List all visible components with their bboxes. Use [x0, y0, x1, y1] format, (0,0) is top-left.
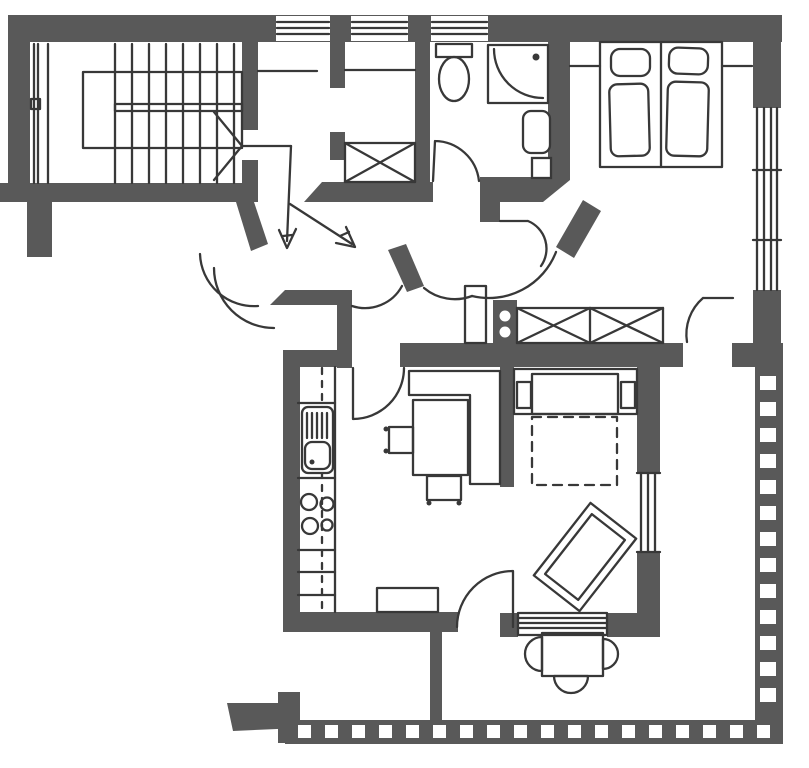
wall-living-right-upper	[637, 350, 660, 473]
hall-stub-chamfer	[388, 244, 424, 292]
dining-table	[413, 400, 468, 475]
chair-knob-2	[384, 449, 389, 454]
floor-plan-page	[0, 0, 809, 768]
duct-shaft	[465, 286, 486, 343]
wall-bathroom-stub	[480, 202, 500, 222]
dining-chair-left	[389, 427, 413, 453]
wall-bathroom-bottom	[480, 177, 570, 202]
balcony-railing-right	[755, 367, 783, 744]
hall-scallop-1	[200, 254, 258, 306]
bedroom-door-swing	[500, 221, 546, 266]
pillow-left	[611, 49, 650, 76]
wall-living-right-lower	[637, 552, 660, 637]
wall-entrance-stub	[236, 202, 268, 251]
duct-shaft-box	[465, 286, 486, 343]
stove-burner-3	[302, 518, 318, 534]
pillar-dot-2	[500, 327, 511, 338]
fold-out-bed-dashed	[532, 417, 617, 485]
wall-stair-left	[8, 15, 30, 202]
wall-corridor-bottom-right	[732, 343, 783, 367]
wall-bathroom-left	[415, 42, 430, 183]
walls	[0, 15, 783, 744]
bathroom-door-swing	[433, 141, 479, 181]
sink-drain-dot	[310, 460, 315, 465]
wall-niche-b	[330, 132, 345, 160]
washbasin-shelf	[532, 158, 551, 178]
stove-burner-1	[301, 494, 317, 510]
blanket-left	[609, 83, 650, 156]
stair-direction-chevron	[214, 112, 242, 180]
armchair-outer	[534, 503, 636, 611]
chair-knob-3	[427, 501, 432, 506]
dining-chair-bottom	[427, 476, 461, 500]
entry-arrow-diagonal	[290, 204, 352, 244]
wall-stub-left	[27, 202, 52, 257]
sofa-arm-right	[621, 382, 635, 408]
chair-knob-4	[457, 501, 462, 506]
pillow-right	[669, 47, 709, 74]
wall-duct-pillar	[493, 300, 517, 345]
floor-plan-drawing	[0, 0, 809, 768]
hall-scallop-3	[352, 286, 402, 308]
corner-bench	[409, 371, 500, 484]
sofa-bed-seat	[532, 374, 618, 414]
washbasin	[523, 111, 550, 153]
toilet-tank	[436, 44, 472, 57]
kitchen-door-swing	[353, 368, 404, 419]
sofa-arm-left	[517, 382, 531, 408]
window-right-bedroom	[753, 108, 781, 290]
wall-hall-pier	[556, 200, 601, 258]
armchair	[534, 503, 636, 611]
bedroom-living-door-swing	[686, 298, 733, 342]
stair-handrail	[115, 104, 242, 111]
armchair-inner	[545, 514, 625, 600]
wall-under-vestibule	[304, 182, 433, 202]
entry-arrow-down	[287, 146, 291, 241]
balcony-chair-bottom	[554, 676, 588, 693]
wardrobe-run-cross	[517, 308, 663, 343]
wall-kitchen-bottom	[283, 612, 458, 632]
balcony-chair-right	[603, 639, 618, 669]
wall-hall-bar	[270, 290, 352, 305]
balcony-chair-left	[525, 637, 542, 671]
chair-knob-1	[384, 427, 389, 432]
blanket-right	[666, 81, 709, 156]
balcony-table	[542, 633, 603, 676]
wall-dining-divider	[500, 367, 514, 487]
toilet-bowl	[439, 57, 469, 101]
wall-niche-a	[330, 42, 345, 88]
hall-scallop-2	[214, 268, 274, 328]
kitchen-base-cabinet	[377, 588, 438, 612]
wall-bathroom-right	[548, 42, 570, 177]
wall-vestibule-left-b	[242, 160, 258, 202]
shower-tray	[488, 45, 548, 103]
pillar-dot-1	[500, 311, 511, 322]
closet-xbox-niche-cross	[345, 143, 415, 182]
shower-drain-dot	[533, 54, 540, 61]
washbasin-group	[523, 111, 551, 178]
wall-vestibule-left-a	[242, 42, 258, 130]
window-living-right	[637, 473, 660, 552]
wall-stair-bottom	[0, 183, 242, 202]
wall-kitchen-left	[283, 350, 300, 632]
wall-right-pier-top	[753, 42, 781, 108]
stair-wall-layer-lines	[34, 44, 48, 183]
wall-living-bottom-left	[500, 613, 518, 637]
